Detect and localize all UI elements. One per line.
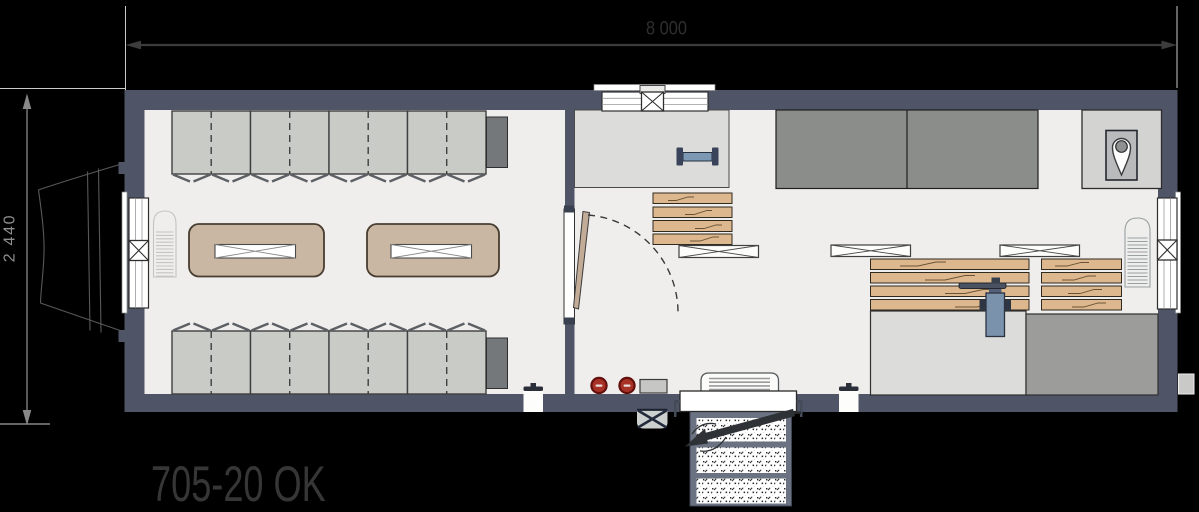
svg-text:2 440: 2 440 (2, 214, 19, 263)
svg-text:705-20 OK: 705-20 OK (151, 457, 326, 512)
svg-text:8 000: 8 000 (646, 17, 687, 39)
